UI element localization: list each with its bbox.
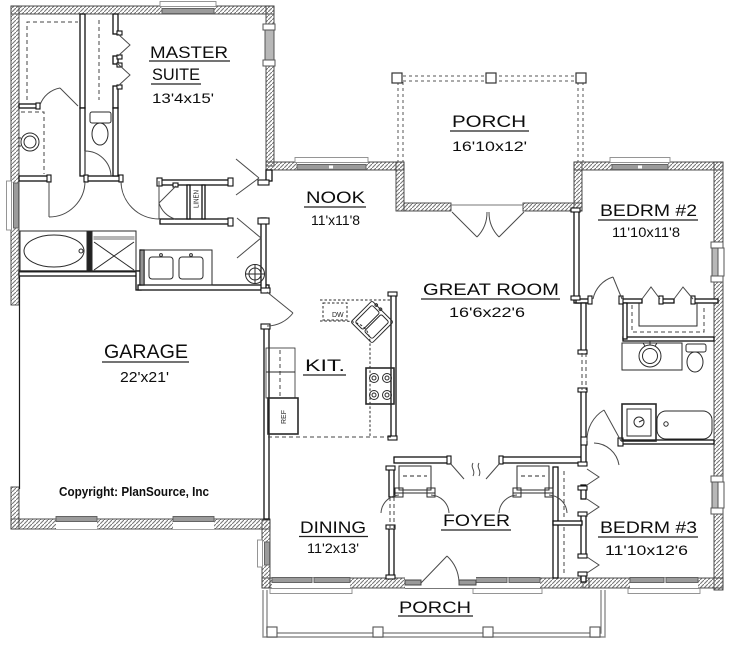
svg-text:PORCH: PORCH <box>399 598 471 617</box>
svg-text:GREAT ROOM: GREAT ROOM <box>423 280 559 299</box>
svg-text:11'2x13': 11'2x13' <box>307 540 359 556</box>
svg-text:13'4x15': 13'4x15' <box>152 90 214 106</box>
svg-text:LINEN: LINEN <box>194 190 201 208</box>
svg-text:MASTER: MASTER <box>150 43 228 62</box>
svg-text:DW: DW <box>332 312 344 319</box>
svg-text:GARAGE: GARAGE <box>104 342 188 363</box>
svg-text:NOOK: NOOK <box>306 188 366 207</box>
svg-text:11'x11'8: 11'x11'8 <box>311 212 360 228</box>
svg-text:16'6x22'6: 16'6x22'6 <box>449 304 525 320</box>
svg-text:PORCH: PORCH <box>452 112 526 131</box>
svg-text:SUITE: SUITE <box>152 65 200 84</box>
svg-text:BEDRM #3: BEDRM #3 <box>600 518 697 537</box>
svg-text:16'10x12': 16'10x12' <box>452 138 527 154</box>
svg-text:22'x21': 22'x21' <box>120 369 169 386</box>
svg-text:REF: REF <box>281 410 288 424</box>
svg-text:BEDRM #2: BEDRM #2 <box>600 201 697 220</box>
svg-text:11'10x11'8: 11'10x11'8 <box>612 224 680 240</box>
svg-text:FOYER: FOYER <box>443 511 510 530</box>
svg-text:11'10x12'6: 11'10x12'6 <box>605 542 688 558</box>
svg-text:Copyright: PlanSource, Inc: Copyright: PlanSource, Inc <box>59 484 209 499</box>
svg-text:DINING: DINING <box>300 518 366 537</box>
svg-text:KIT.: KIT. <box>305 356 345 375</box>
